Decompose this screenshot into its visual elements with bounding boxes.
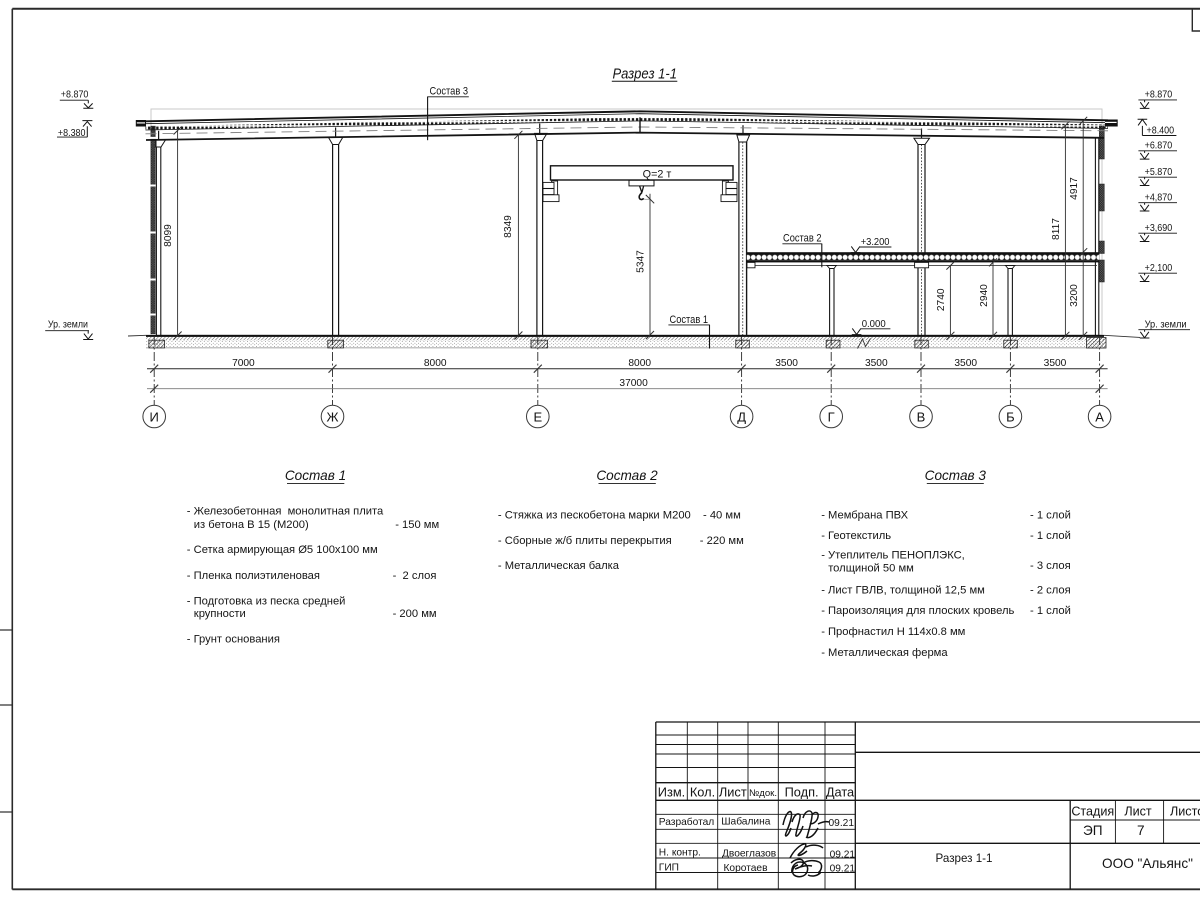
svg-text:+2,100: +2,100 [1145,263,1173,274]
svg-text:- Профнастил Н 114х0.8 мм: - Профнастил Н 114х0.8 мм [821,626,965,638]
svg-text:3500: 3500 [865,358,888,369]
svg-text:- Грунт основания: - Грунт основания [187,634,280,646]
svg-text:- 1 слой: - 1 слой [1030,510,1071,522]
svg-text:- Сборные ж/б плиты перекрытия: - Сборные ж/б плиты перекрытия [498,535,672,547]
svg-text:Q=2 т: Q=2 т [643,168,672,180]
svg-text:Б: Б [1006,409,1015,424]
svg-text:- 2 слоя: - 2 слоя [393,570,437,582]
svg-text:8349: 8349 [503,215,514,238]
svg-text:8000: 8000 [424,358,447,369]
svg-text:37000: 37000 [619,378,648,389]
svg-text:- Сетка армирующая Ø5 100х100: - Сетка армирующая Ø5 100х100 мм [187,544,378,556]
svg-text:- 1 слой: - 1 слой [1030,530,1071,542]
svg-text:- Лист ГВЛВ, толщиной 12,5 мм: - Лист ГВЛВ, толщиной 12,5 мм [821,585,985,597]
svg-text:Лист: Лист [719,785,747,800]
svg-text:ЭП: ЭП [1083,823,1103,838]
svg-text:Разрез 1-1: Разрез 1-1 [936,852,993,865]
svg-text:09.21: 09.21 [830,863,856,874]
svg-text:Листов: Листов [1170,804,1200,818]
svg-text:Ур. земли: Ур. земли [1145,319,1187,330]
svg-text:Состав 2: Состав 2 [783,233,822,245]
svg-text:- Стяжка из пескобетона марки: - Стяжка из пескобетона марки М200 [498,510,691,522]
svg-text:+6.870: +6.870 [1145,140,1173,151]
svg-text:7000: 7000 [232,358,255,369]
svg-text:+8.870: +8.870 [61,89,89,100]
svg-text:Разработал: Разработал [659,816,715,828]
svg-text:Дата: Дата [826,785,855,800]
svg-text:Е: Е [533,409,542,424]
svg-text:8099: 8099 [163,224,174,247]
svg-text:Изм.: Изм. [658,785,685,800]
svg-text:- Металлическая ферма: - Металлическая ферма [821,647,948,659]
svg-text:09.21: 09.21 [830,849,856,860]
svg-text:2740: 2740 [936,288,947,311]
svg-text:- Геотекстиль: - Геотекстиль [821,530,891,542]
svg-text:- Пароизоляция для плоских кро: - Пароизоляция для плоских кровель [821,605,1014,617]
svg-text:Г: Г [828,409,835,424]
svg-text:3200: 3200 [1069,284,1080,307]
svg-text:И: И [150,409,159,424]
svg-text:- Пленка полиэтиленовая: - Пленка полиэтиленовая [187,570,320,582]
svg-text:В: В [917,409,926,424]
svg-text:- Металлическая балка: - Металлическая балка [498,560,620,572]
svg-text:Коротаев: Коротаев [724,863,768,874]
svg-text:- Железобетонная монолитная п: - Железобетонная монолитная плита [187,506,384,518]
svg-text:Состав 3: Состав 3 [430,86,469,98]
svg-text:3500: 3500 [1044,358,1067,369]
svg-text:8117: 8117 [1051,218,1062,240]
svg-text:- 200 мм: - 200 мм [393,608,437,620]
svg-text:№док.: №док. [749,788,777,799]
svg-text:- Утеплитель ПЕНОПЛЭКС,: - Утеплитель ПЕНОПЛЭКС, [821,550,965,562]
svg-text:Ж: Ж [326,409,338,424]
svg-text:09.21: 09.21 [829,818,855,829]
svg-text:8000: 8000 [628,358,651,369]
svg-text:- 3 слоя: - 3 слоя [1030,560,1071,572]
svg-text:А: А [1095,409,1104,424]
svg-text:- 150 мм: - 150 мм [395,519,439,531]
svg-text:Кол.: Кол. [690,785,715,800]
svg-text:- 40 мм: - 40 мм [703,510,741,522]
svg-text:- 220 мм: - 220 мм [700,535,744,547]
svg-text:+4,870: +4,870 [1145,192,1173,203]
svg-text:ГИП: ГИП [659,863,679,874]
svg-text:- Подготовка из песка средней: - Подготовка из песка средней [187,595,346,607]
svg-text:крупности: крупности [194,608,246,620]
svg-text:Ур. земли: Ур. земли [48,320,88,331]
svg-text:5347: 5347 [636,250,647,273]
svg-text:4917: 4917 [1069,177,1080,200]
svg-text:Лист: Лист [1124,804,1152,818]
svg-text:из бетона В 15 (М200): из бетона В 15 (М200) [194,519,309,531]
svg-text:Состав 1: Состав 1 [670,314,709,326]
svg-text:Стадия: Стадия [1071,804,1114,818]
svg-text:Состав 1: Состав 1 [285,468,346,483]
svg-text:Д: Д [737,409,746,424]
svg-text:+5.870: +5.870 [1145,167,1173,178]
svg-text:2940: 2940 [979,284,990,307]
svg-text:Подп.: Подп. [785,785,819,800]
svg-text:толщиной 50 мм: толщиной 50 мм [828,562,914,574]
svg-text:3500: 3500 [954,358,977,369]
svg-text:ООО "Альянс": ООО "Альянс" [1102,856,1193,871]
svg-text:0.000: 0.000 [862,319,886,330]
svg-text:- 1 слой: - 1 слой [1030,605,1071,617]
svg-text:3500: 3500 [775,358,798,369]
svg-text:Н. контр.: Н. контр. [659,848,701,859]
svg-text:Шабалина: Шабалина [721,816,771,828]
svg-text:- Мембрана ПВХ: - Мембрана ПВХ [821,510,908,522]
svg-text:+3.200: +3.200 [861,237,890,248]
svg-text:- 2 слоя: - 2 слоя [1030,585,1071,597]
svg-text:Состав 3: Состав 3 [925,468,987,483]
svg-text:+8.400: +8.400 [1147,126,1175,137]
svg-text:+8.870: +8.870 [1145,89,1173,100]
svg-text:7: 7 [1137,823,1145,838]
svg-text:Состав 2: Состав 2 [596,468,658,483]
svg-text:Разрез 1-1: Разрез 1-1 [613,65,678,82]
svg-text:+3,690: +3,690 [1145,223,1173,234]
svg-text:Двоеглазов: Двоеглазов [722,849,776,860]
